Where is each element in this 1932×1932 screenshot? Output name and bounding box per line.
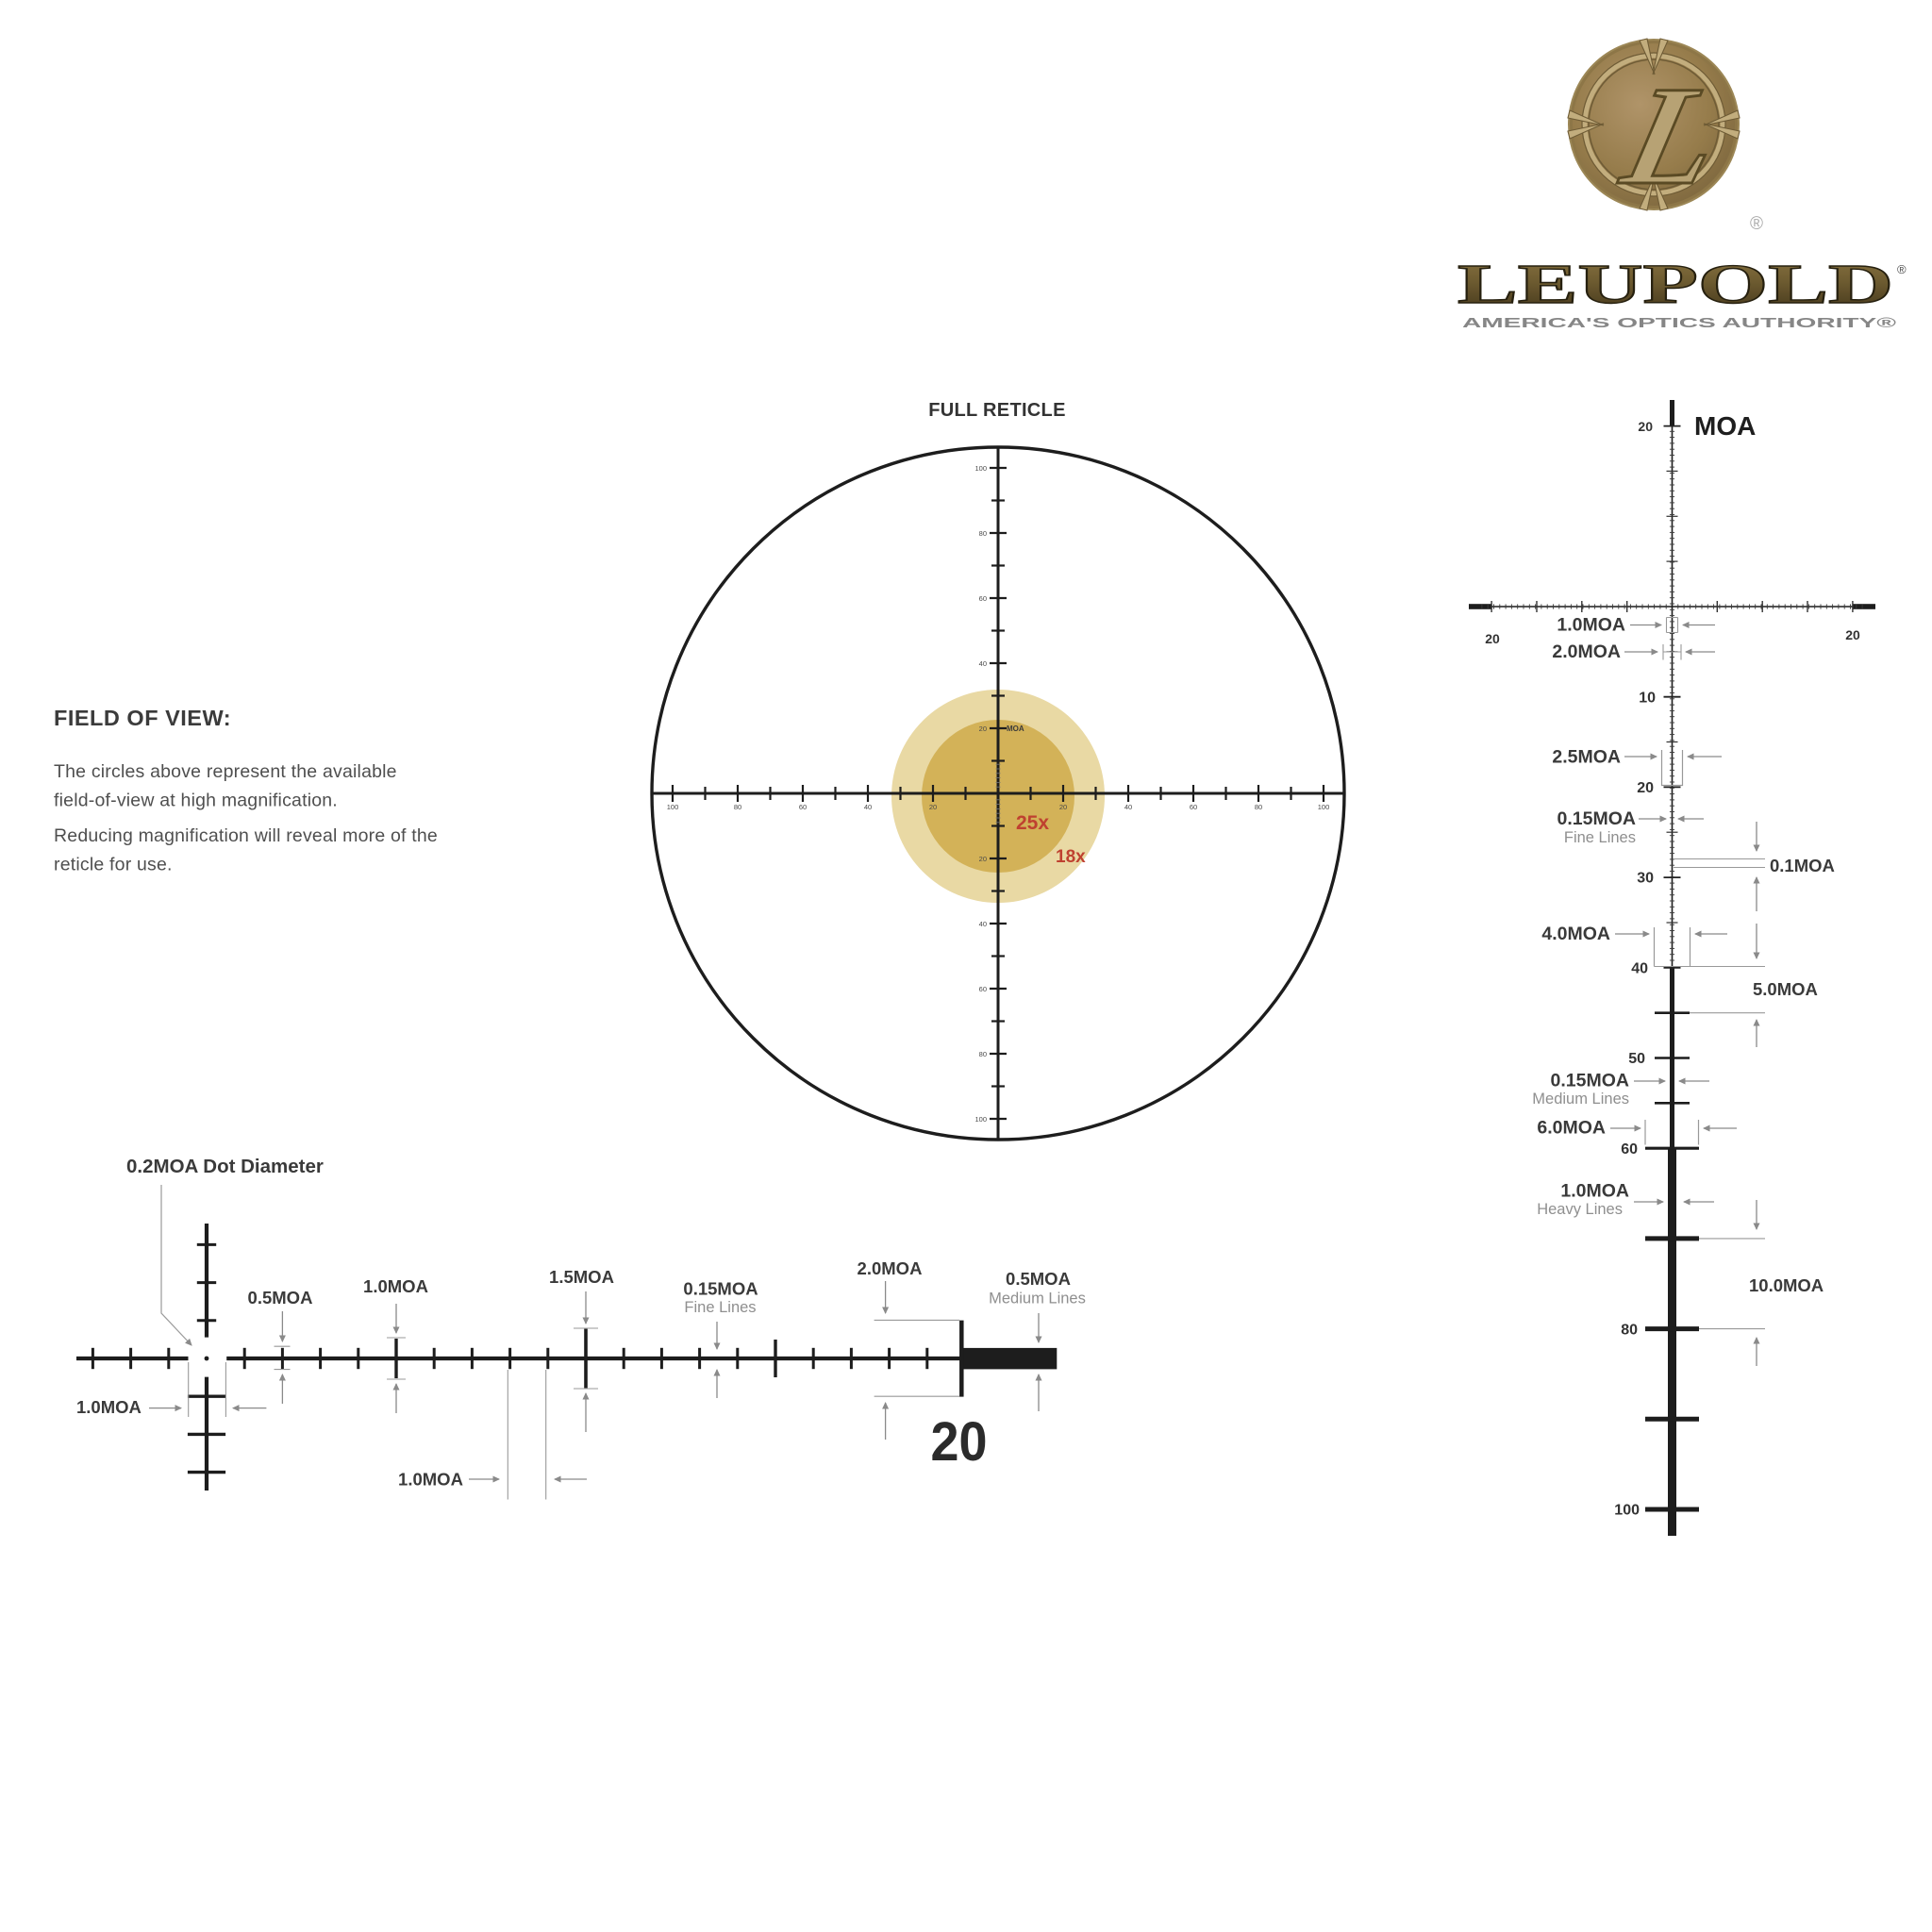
svg-text:5.0MOA: 5.0MOA xyxy=(1753,979,1818,999)
svg-text:1.0MOA: 1.0MOA xyxy=(363,1276,428,1296)
svg-text:Reducing magnification will re: Reducing magnification will reveal more … xyxy=(54,825,438,846)
svg-text:100: 100 xyxy=(974,464,987,473)
svg-text:30: 30 xyxy=(1637,871,1654,887)
svg-text:20: 20 xyxy=(1059,803,1067,811)
svg-text:MOA: MOA xyxy=(1694,411,1756,441)
svg-text:25x: 25x xyxy=(1016,812,1049,834)
svg-text:40: 40 xyxy=(1124,803,1132,811)
svg-text:80: 80 xyxy=(979,529,987,538)
svg-text:40: 40 xyxy=(979,659,987,668)
svg-text:20: 20 xyxy=(979,724,987,733)
svg-text:0.1MOA: 0.1MOA xyxy=(1770,856,1835,875)
svg-text:®: ® xyxy=(1897,262,1907,276)
svg-text:Heavy Lines: Heavy Lines xyxy=(1537,1201,1623,1218)
svg-text:2.0MOA: 2.0MOA xyxy=(1552,641,1621,662)
svg-text:1.0MOA: 1.0MOA xyxy=(1557,615,1625,636)
svg-text:Medium Lines: Medium Lines xyxy=(1532,1091,1629,1108)
svg-text:0.15MOA: 0.15MOA xyxy=(1551,1071,1629,1091)
svg-text:1.0MOA: 1.0MOA xyxy=(1560,1181,1629,1202)
svg-text:field-of-view at high magnific: field-of-view at high magnification. xyxy=(54,791,338,811)
svg-text:40: 40 xyxy=(1631,961,1648,977)
svg-text:0.15MOA: 0.15MOA xyxy=(1557,808,1636,829)
svg-text:MOA: MOA xyxy=(1007,724,1024,733)
svg-text:80: 80 xyxy=(1621,1323,1638,1339)
svg-text:Medium Lines: Medium Lines xyxy=(989,1291,1086,1307)
svg-text:20: 20 xyxy=(929,803,937,811)
svg-text:Fine Lines: Fine Lines xyxy=(684,1299,756,1316)
svg-text:1.5MOA: 1.5MOA xyxy=(549,1267,614,1287)
svg-text:60: 60 xyxy=(1190,803,1197,811)
svg-text:60: 60 xyxy=(979,985,987,993)
svg-text:60: 60 xyxy=(799,803,807,811)
svg-text:50: 50 xyxy=(1628,1051,1645,1067)
svg-text:2.0MOA: 2.0MOA xyxy=(858,1258,923,1278)
svg-text:Fine Lines: Fine Lines xyxy=(1564,829,1636,846)
svg-text:60: 60 xyxy=(1621,1141,1638,1158)
svg-text:FULL RETICLE: FULL RETICLE xyxy=(928,400,1065,421)
svg-text:AMERICA'S OPTICS AUTHORITY®: AMERICA'S OPTICS AUTHORITY® xyxy=(1462,315,1896,331)
svg-text:40: 40 xyxy=(979,920,987,928)
svg-text:0.5MOA: 0.5MOA xyxy=(248,1288,313,1307)
svg-text:20: 20 xyxy=(931,1411,988,1473)
svg-text:4.0MOA: 4.0MOA xyxy=(1541,924,1610,944)
svg-text:18x: 18x xyxy=(1056,847,1086,867)
svg-text:100: 100 xyxy=(667,803,679,811)
svg-text:0.15MOA: 0.15MOA xyxy=(683,1279,758,1299)
svg-text:100: 100 xyxy=(974,1115,987,1124)
svg-text:100: 100 xyxy=(1614,1503,1640,1519)
svg-text:80: 80 xyxy=(979,1050,987,1058)
svg-text:®: ® xyxy=(1750,214,1763,234)
svg-text:20: 20 xyxy=(1485,631,1500,646)
svg-text:The circles above represent th: The circles above represent the availabl… xyxy=(54,761,397,782)
svg-text:20: 20 xyxy=(1637,780,1654,796)
svg-text:LEUPOLD: LEUPOLD xyxy=(1457,253,1893,315)
svg-text:100: 100 xyxy=(1318,803,1330,811)
svg-text:reticle for use.: reticle for use. xyxy=(54,855,173,875)
svg-text:80: 80 xyxy=(734,803,741,811)
svg-text:20: 20 xyxy=(1845,627,1860,642)
svg-text:1.0MOA: 1.0MOA xyxy=(76,1397,142,1417)
svg-text:FIELD OF VIEW:: FIELD OF VIEW: xyxy=(54,706,231,730)
svg-text:2.5MOA: 2.5MOA xyxy=(1552,747,1621,768)
svg-text:10.0MOA: 10.0MOA xyxy=(1749,1275,1824,1295)
svg-text:10: 10 xyxy=(1639,691,1656,707)
svg-text:1.0MOA: 1.0MOA xyxy=(398,1470,463,1490)
svg-text:40: 40 xyxy=(864,803,872,811)
svg-text:6.0MOA: 6.0MOA xyxy=(1537,1118,1606,1139)
svg-text:60: 60 xyxy=(979,594,987,603)
svg-text:20: 20 xyxy=(1638,419,1653,434)
svg-text:80: 80 xyxy=(1255,803,1262,811)
svg-text:0.5MOA: 0.5MOA xyxy=(1006,1269,1071,1289)
svg-text:20: 20 xyxy=(979,855,987,863)
svg-text:0.2MOA Dot Diameter: 0.2MOA Dot Diameter xyxy=(126,1156,324,1177)
